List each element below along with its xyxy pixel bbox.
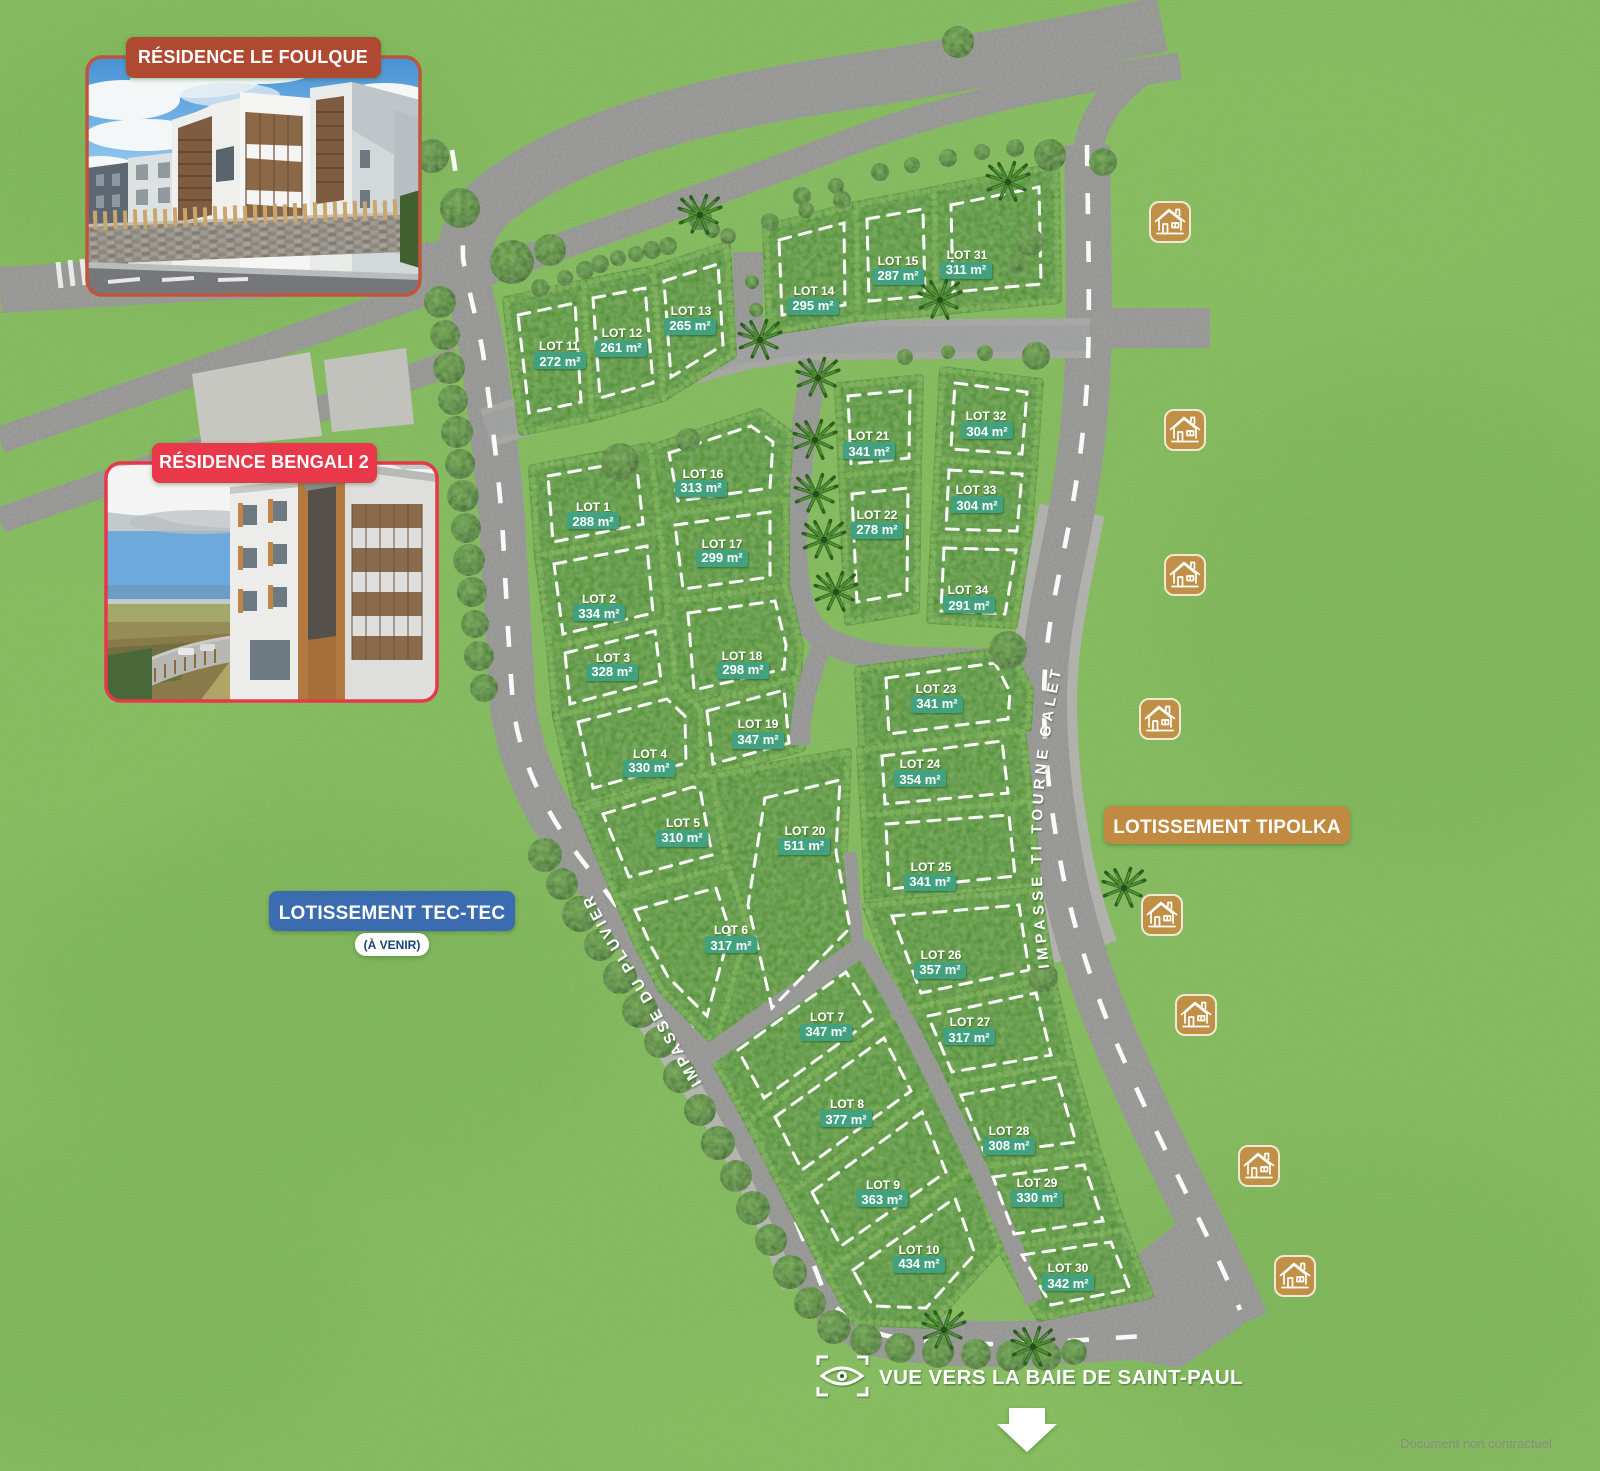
svg-text:RÉSIDENCE BENGALI 2: RÉSIDENCE BENGALI 2 — [159, 451, 369, 472]
svg-text:LOT 26: LOT 26 — [921, 948, 962, 962]
svg-text:LOT 9: LOT 9 — [866, 1178, 900, 1192]
svg-text:LOT 16: LOT 16 — [683, 467, 724, 481]
svg-text:308 m²: 308 m² — [988, 1138, 1030, 1153]
svg-text:LOT 33: LOT 33 — [956, 483, 997, 497]
svg-text:298 m²: 298 m² — [722, 662, 764, 677]
svg-text:328 m²: 328 m² — [591, 664, 633, 679]
svg-text:LOT 10: LOT 10 — [899, 1243, 940, 1257]
svg-text:291 m²: 291 m² — [948, 598, 990, 613]
svg-text:LOT 19: LOT 19 — [738, 717, 779, 731]
svg-text:354 m²: 354 m² — [899, 772, 941, 787]
svg-text:LOT 27: LOT 27 — [950, 1015, 991, 1029]
svg-text:334 m²: 334 m² — [578, 606, 620, 621]
svg-text:LOT 5: LOT 5 — [666, 816, 700, 830]
svg-text:LOT 28: LOT 28 — [989, 1124, 1030, 1138]
svg-text:LOT 3: LOT 3 — [596, 651, 630, 665]
svg-text:317 m²: 317 m² — [948, 1030, 990, 1045]
svg-text:LOT 23: LOT 23 — [916, 682, 957, 696]
svg-text:Document non contractuel: Document non contractuel — [1400, 1436, 1552, 1451]
svg-text:LOT 25: LOT 25 — [911, 860, 952, 874]
svg-text:288 m²: 288 m² — [572, 514, 614, 529]
svg-text:265 m²: 265 m² — [669, 318, 711, 333]
svg-text:LOT 21: LOT 21 — [849, 429, 890, 443]
svg-text:347 m²: 347 m² — [737, 732, 779, 747]
svg-text:317 m²: 317 m² — [710, 938, 752, 953]
svg-text:LOT 29: LOT 29 — [1017, 1176, 1058, 1190]
svg-text:RÉSIDENCE LE FOULQUE: RÉSIDENCE LE FOULQUE — [138, 46, 368, 67]
svg-text:VUE VERS LA BAIE DE SAINT-PAUL: VUE VERS LA BAIE DE SAINT-PAUL — [879, 1366, 1243, 1389]
svg-text:LOT 24: LOT 24 — [900, 757, 941, 771]
svg-text:295 m²: 295 m² — [792, 298, 834, 313]
svg-text:304 m²: 304 m² — [966, 424, 1008, 439]
svg-text:272 m²: 272 m² — [539, 354, 581, 369]
svg-text:(À VENIR): (À VENIR) — [364, 937, 421, 952]
svg-text:LOT 14: LOT 14 — [794, 284, 835, 298]
svg-text:287 m²: 287 m² — [877, 268, 919, 283]
svg-text:LOT 32: LOT 32 — [966, 409, 1007, 423]
svg-text:LOT 30: LOT 30 — [1048, 1261, 1089, 1275]
svg-text:LOT 12: LOT 12 — [602, 326, 643, 340]
svg-text:LOT 8: LOT 8 — [830, 1097, 864, 1111]
svg-text:313 m²: 313 m² — [680, 480, 722, 495]
svg-text:LOT 20: LOT 20 — [785, 824, 826, 838]
svg-text:278 m²: 278 m² — [856, 522, 898, 537]
svg-text:341 m²: 341 m² — [848, 444, 890, 459]
svg-text:304 m²: 304 m² — [956, 498, 998, 513]
svg-text:LOT 31: LOT 31 — [947, 248, 988, 262]
svg-text:357 m²: 357 m² — [919, 962, 961, 977]
svg-text:LOT 6: LOT 6 — [714, 923, 748, 937]
svg-text:311 m²: 311 m² — [946, 262, 987, 277]
svg-text:LOT 4: LOT 4 — [633, 747, 667, 761]
svg-text:342 m²: 342 m² — [1047, 1276, 1089, 1291]
svg-text:347 m²: 347 m² — [805, 1024, 847, 1039]
svg-text:299 m²: 299 m² — [701, 550, 743, 565]
svg-text:LOT 7: LOT 7 — [810, 1010, 844, 1024]
svg-text:LOT 11: LOT 11 — [539, 339, 579, 353]
svg-text:511 m²: 511 m² — [784, 838, 825, 853]
svg-text:330 m²: 330 m² — [1016, 1190, 1058, 1205]
svg-text:261 m²: 261 m² — [600, 340, 642, 355]
svg-text:377 m²: 377 m² — [825, 1112, 867, 1127]
svg-text:310 m²: 310 m² — [661, 830, 703, 845]
svg-text:LOT 22: LOT 22 — [857, 508, 898, 522]
svg-text:330 m²: 330 m² — [628, 760, 670, 775]
svg-text:341 m²: 341 m² — [916, 696, 958, 711]
svg-text:363 m²: 363 m² — [861, 1192, 903, 1207]
svg-text:LOT 17: LOT 17 — [702, 537, 743, 551]
svg-text:LOT 34: LOT 34 — [948, 583, 989, 597]
svg-text:LOT 2: LOT 2 — [582, 592, 616, 606]
svg-text:LOT 1: LOT 1 — [576, 500, 610, 514]
svg-text:LOT 18: LOT 18 — [722, 649, 763, 663]
svg-text:LOTISSEMENT TIPOLKA: LOTISSEMENT TIPOLKA — [1113, 817, 1341, 838]
svg-text:341 m²: 341 m² — [909, 874, 951, 889]
svg-text:LOT 13: LOT 13 — [671, 304, 712, 318]
svg-text:LOTISSEMENT TEC-TEC: LOTISSEMENT TEC-TEC — [279, 903, 506, 924]
svg-text:LOT 15: LOT 15 — [878, 254, 919, 268]
svg-text:434 m²: 434 m² — [898, 1256, 940, 1271]
